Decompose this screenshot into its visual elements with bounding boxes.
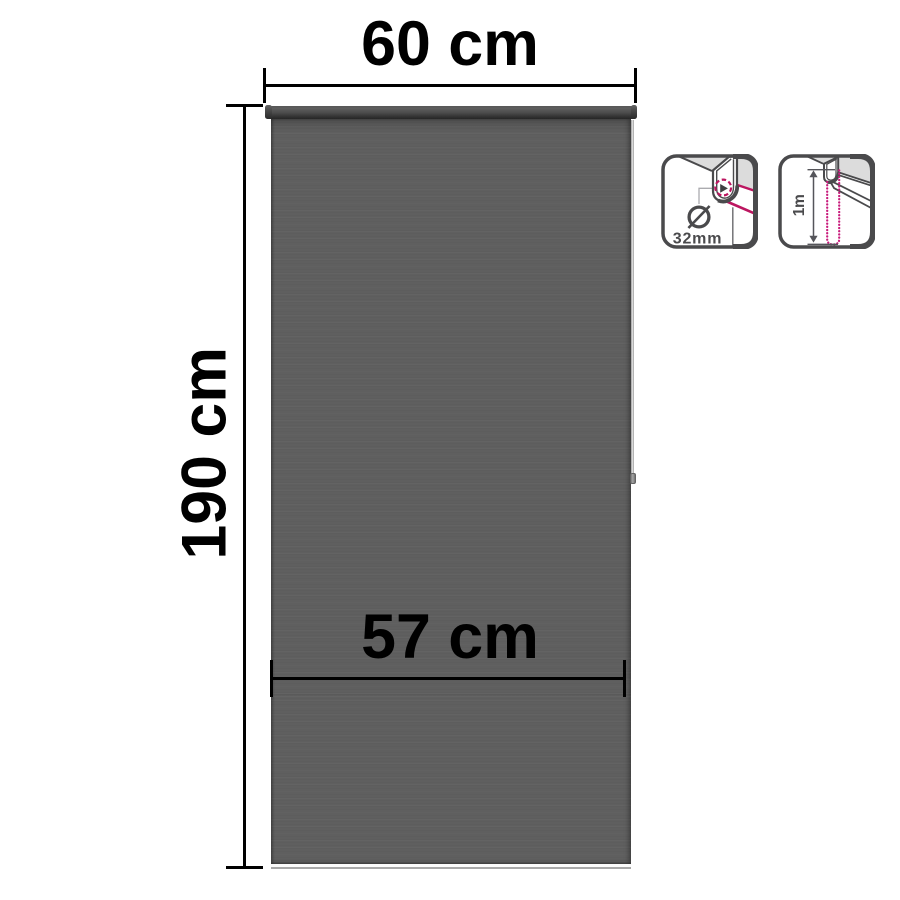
svg-text:1m: 1m — [791, 194, 808, 216]
svg-text:32mm: 32mm — [672, 230, 721, 247]
